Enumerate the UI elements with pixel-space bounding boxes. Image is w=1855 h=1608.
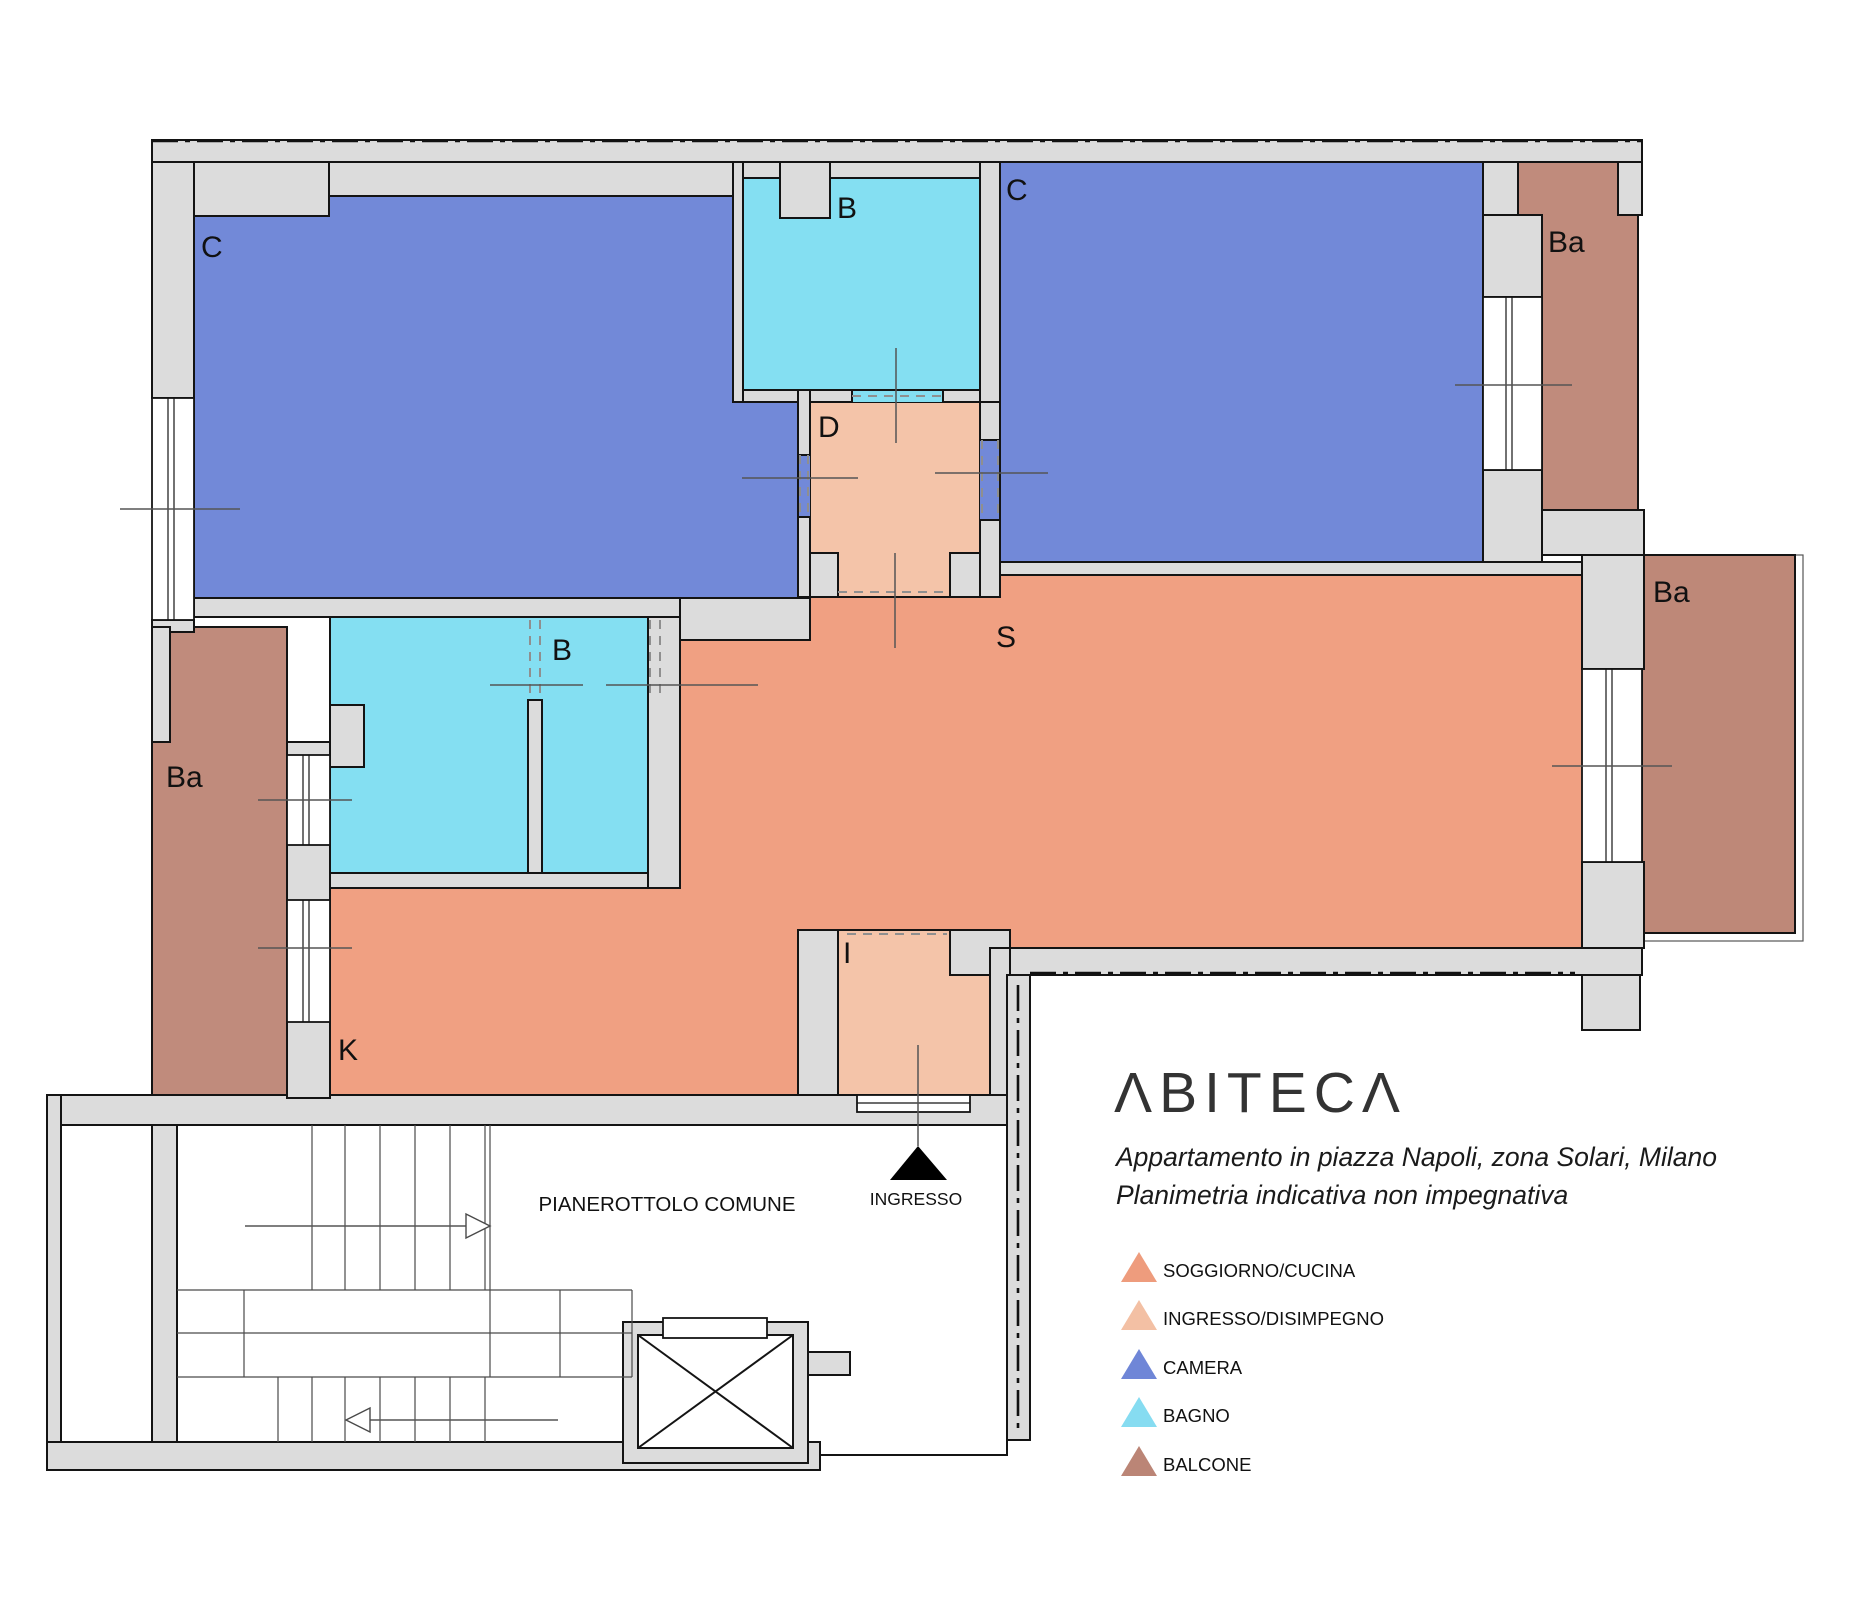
- abiteca-logo: ΛBITECΛ: [1114, 1061, 1407, 1125]
- label-soggiorno: S: [996, 621, 1016, 654]
- wall-segment: [1582, 862, 1644, 948]
- wall-segment: [980, 520, 1000, 597]
- wall-segment: [1010, 948, 1642, 975]
- floor-plan-svg: INGRESSO C B C D Ba Ba B S Ba K I PIANER…: [0, 0, 1855, 1608]
- wall-segment: [152, 1125, 177, 1442]
- legend-item-soggiorno: SOGGIORNO/CUCINA: [1121, 1252, 1356, 1282]
- label-camera-2: C: [1006, 174, 1028, 207]
- wall-segment: [1582, 555, 1644, 669]
- legend-triangle-icon: [1121, 1300, 1157, 1330]
- legend-triangle-icon: [1121, 1349, 1157, 1379]
- label-bagno-2: B: [552, 634, 572, 667]
- room-balcone-right: [1642, 555, 1795, 933]
- wall-segment: [798, 390, 810, 455]
- legend-label: INGRESSO/DISIMPEGNO: [1163, 1308, 1384, 1329]
- elevator-door: [663, 1318, 767, 1338]
- wall-segment: [980, 162, 1000, 402]
- legend-item-camera: CAMERA: [1121, 1349, 1243, 1379]
- wall-segment: [1483, 215, 1542, 297]
- legend-label: SOGGIORNO/CUCINA: [1163, 1260, 1356, 1281]
- stair-shaft: [61, 1125, 152, 1442]
- legend-triangle-icon: [1121, 1397, 1157, 1427]
- soggiorno-main-fill: [798, 575, 1582, 948]
- wall-segment: [1483, 470, 1542, 562]
- wall-segment: [798, 517, 810, 597]
- entrance-label: INGRESSO: [870, 1189, 962, 1209]
- cucina-fill: [330, 888, 798, 1095]
- wall-segment: [152, 627, 170, 742]
- wall-segment: [528, 700, 542, 873]
- label-balcone-top-right: Ba: [1548, 226, 1585, 259]
- wall-segment: [329, 162, 738, 196]
- label-disimpegno: D: [818, 411, 840, 444]
- label-balcone-left: Ba: [166, 761, 203, 794]
- room-camera-1: [194, 196, 798, 598]
- wall-segment: [1542, 510, 1644, 555]
- wall-segment: [194, 162, 329, 216]
- wall-segment: [194, 598, 680, 617]
- room-balcone-left: [152, 627, 287, 1095]
- wall-segment: [330, 873, 648, 888]
- wall-segment: [47, 1095, 61, 1470]
- wall-segment: [1618, 162, 1642, 215]
- door-gap-bagno1: [852, 390, 943, 402]
- wall-segment: [1000, 562, 1582, 575]
- wall-segment: [743, 162, 980, 178]
- label-ingresso: I: [843, 937, 851, 970]
- label-cucina: K: [338, 1034, 358, 1067]
- legend-item-ingresso: INGRESSO/DISIMPEGNO: [1121, 1300, 1384, 1330]
- room-bagno-2: [330, 617, 648, 873]
- label-bagno-1: B: [837, 192, 857, 225]
- label-camera-1: C: [201, 231, 223, 264]
- legend-label: BAGNO: [1163, 1405, 1230, 1426]
- legend-item-balcone: BALCONE: [1121, 1446, 1251, 1476]
- wall-segment: [152, 140, 1642, 162]
- wall-segment: [808, 1352, 850, 1375]
- wall-segment: [950, 553, 980, 597]
- legend-label: BALCONE: [1163, 1454, 1251, 1475]
- wall-segment: [1483, 162, 1518, 215]
- label-pianerottolo: PIANEROTTOLO COMUNE: [538, 1193, 795, 1216]
- wall-segment: [680, 598, 810, 640]
- wall-segment: [780, 162, 830, 218]
- branding: ΛBITECΛ Appartamento in piazza Napoli, z…: [1114, 1061, 1717, 1210]
- legend-item-bagno: BAGNO: [1121, 1397, 1230, 1427]
- label-balcone-right: Ba: [1653, 576, 1690, 609]
- legend: SOGGIORNO/CUCINA INGRESSO/DISIMPEGNO CAM…: [1121, 1252, 1384, 1476]
- wall-segment: [330, 705, 364, 767]
- elevator: [638, 1318, 793, 1448]
- room-camera-2: [1000, 162, 1483, 562]
- room-bagno-1: [743, 178, 980, 390]
- wall-segment: [152, 162, 194, 398]
- wall-segment: [980, 402, 1000, 440]
- legend-label: CAMERA: [1163, 1357, 1243, 1378]
- legend-triangle-icon: [1121, 1446, 1157, 1476]
- caption-line2: Planimetria indicativa non impegnativa: [1116, 1180, 1568, 1210]
- wall-segment: [648, 617, 680, 888]
- caption-line1: Appartamento in piazza Napoli, zona Sola…: [1114, 1142, 1717, 1172]
- legend-triangle-icon: [1121, 1252, 1157, 1282]
- wall-segment: [810, 553, 838, 597]
- wall-segment: [733, 162, 743, 402]
- wall-segment: [943, 390, 980, 402]
- floor-plan-page: INGRESSO C B C D Ba Ba B S Ba K I PIANER…: [0, 0, 1855, 1608]
- wall-segment: [1582, 975, 1640, 1030]
